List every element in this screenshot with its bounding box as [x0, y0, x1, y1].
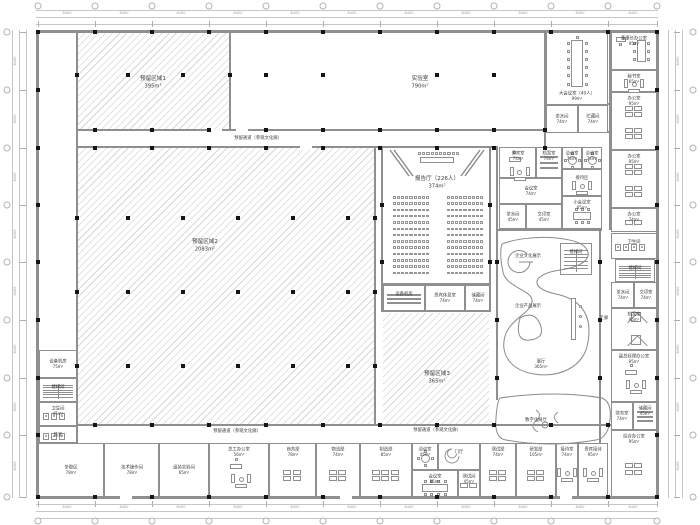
sofa [235, 484, 247, 488]
wc-fixture [633, 246, 635, 248]
stool [579, 315, 582, 318]
chair [587, 221, 590, 224]
desk [498, 476, 506, 481]
room-label: 茶歇区78m² [64, 465, 77, 475]
column [606, 30, 610, 34]
column [346, 290, 350, 294]
desk [391, 470, 399, 475]
chair [567, 74, 570, 77]
room-label: 贵宾接待95m² [584, 447, 601, 457]
column [373, 290, 377, 294]
room-label: 综合办公室95m² [623, 434, 645, 444]
room-label: 洽谈室74m² [565, 151, 578, 161]
desk [634, 134, 642, 139]
column [492, 423, 496, 427]
desk [293, 470, 301, 475]
chair [647, 58, 650, 61]
column [549, 495, 553, 499]
room-label: 办公室95m² [627, 154, 640, 164]
room-label: 前室 [54, 432, 63, 437]
area-label: 预留通道（参观文化廊） [213, 428, 261, 433]
column [207, 30, 211, 34]
wc-fixture [617, 246, 619, 248]
room-label: 接待区 [575, 175, 588, 180]
room-label: 茶水间45m² [506, 211, 519, 221]
chair [567, 50, 570, 53]
column [378, 146, 382, 150]
room-label: 财务室74m² [615, 411, 628, 421]
desk [391, 476, 399, 481]
column [93, 30, 97, 34]
column [150, 423, 154, 427]
chair [633, 50, 636, 53]
column [655, 203, 659, 207]
column [181, 216, 185, 220]
desk [625, 370, 637, 375]
room-label: 贵宾室74m² [511, 151, 524, 161]
column [126, 73, 130, 77]
chair [424, 464, 427, 467]
column [495, 318, 499, 322]
column [207, 423, 211, 427]
column [655, 88, 659, 92]
chair [571, 166, 574, 169]
sofa [599, 468, 603, 477]
chair [567, 83, 570, 86]
sofa [628, 89, 640, 93]
room-label: 董事长办公室95m² [621, 36, 647, 46]
chair [424, 493, 427, 496]
column [435, 146, 439, 150]
coffee-table [591, 471, 596, 476]
room-label: 设备机房 [395, 291, 412, 296]
room-label: 茶水间74m² [616, 290, 629, 300]
desk [634, 164, 642, 169]
desk [527, 476, 535, 481]
column [435, 128, 439, 132]
chair [444, 493, 447, 496]
column [36, 30, 40, 34]
room-label: 秘书室65m² [627, 74, 640, 84]
column [207, 128, 211, 132]
column [492, 30, 496, 34]
chair [585, 50, 588, 53]
column [655, 495, 659, 499]
column [321, 146, 325, 150]
room-label: 商务部78m² [286, 447, 299, 457]
chair [647, 42, 650, 45]
meeting-table [573, 212, 591, 220]
column [435, 495, 439, 499]
column [321, 73, 325, 77]
coffee-table [517, 170, 522, 175]
column [207, 495, 211, 499]
column [492, 73, 496, 77]
zone-label: 实验室790m² [411, 75, 428, 89]
desk [329, 470, 337, 475]
column [495, 376, 499, 380]
room-label: 卫生间45m² [51, 406, 64, 416]
column [378, 30, 382, 34]
desk [634, 112, 642, 117]
room-label: 文印室74m² [639, 290, 652, 300]
column [36, 260, 40, 264]
column [126, 364, 130, 368]
room-label: 研发部105m² [529, 447, 542, 457]
column [655, 260, 659, 264]
column [181, 364, 185, 368]
desk [625, 186, 633, 191]
sofa [576, 191, 588, 195]
column [321, 128, 325, 132]
column [655, 146, 659, 150]
room-label: 小会议室65m² [573, 200, 590, 210]
column [346, 364, 350, 368]
sofa [626, 380, 630, 389]
stage-podium [420, 157, 454, 163]
sofa [587, 478, 599, 482]
room-label: 档案室95m² [627, 312, 640, 322]
column [36, 433, 40, 437]
column [655, 318, 659, 322]
chair [585, 58, 588, 61]
shelf [540, 167, 558, 169]
sofa [561, 478, 573, 482]
column [36, 376, 40, 380]
sofa [588, 181, 592, 190]
desk [293, 476, 301, 481]
desk [634, 106, 642, 111]
column [378, 128, 382, 132]
column [655, 433, 659, 437]
desk [338, 476, 346, 481]
column [291, 216, 295, 220]
room-label: 大会议室（40人）99m² [559, 91, 595, 101]
room-label: 储藏间45m² [638, 406, 651, 416]
chair [431, 457, 434, 460]
room-label: 贮藏间74m² [586, 114, 599, 124]
room-label: 测试部74m² [491, 447, 504, 457]
wc-fixture [45, 435, 47, 437]
room-label: 楼梯间 [569, 249, 582, 254]
desk [625, 170, 633, 175]
column [150, 495, 154, 499]
desk [625, 134, 633, 139]
column [380, 203, 384, 207]
sofa [526, 167, 530, 176]
zone-label: 预留区域22083m² [192, 238, 218, 252]
column [36, 495, 40, 499]
shelf [387, 298, 421, 300]
column [75, 364, 79, 368]
desk [634, 192, 642, 197]
column [321, 423, 325, 427]
column [207, 146, 211, 150]
desk [625, 128, 633, 133]
column [264, 30, 268, 34]
column [236, 290, 240, 294]
room-label: 茶水间74m² [555, 114, 568, 124]
sofa [557, 468, 561, 477]
column [435, 30, 439, 34]
column [75, 73, 79, 77]
column [93, 495, 97, 499]
desk [372, 470, 380, 475]
column [264, 73, 268, 77]
column [264, 146, 268, 150]
column [75, 216, 79, 220]
column [373, 364, 377, 368]
column [93, 423, 97, 427]
desk [634, 463, 642, 468]
desk [372, 476, 380, 481]
column [549, 30, 553, 34]
desk [283, 470, 291, 475]
desk [634, 128, 642, 133]
column [36, 203, 40, 207]
room-label: 副总经理办公室95m² [619, 354, 649, 364]
desk [625, 112, 633, 117]
chair [575, 221, 578, 224]
conference-table [571, 40, 583, 87]
area-label: 走廊 [600, 315, 609, 320]
column [181, 290, 185, 294]
chair [424, 480, 427, 483]
room-label: 卫生间 [627, 239, 640, 244]
column [236, 364, 240, 368]
column [150, 128, 154, 132]
desk [338, 470, 346, 475]
desk [536, 470, 544, 475]
floor-plan-canvas: 大会议室（40人）99m²茶水间74m²贮藏间74m²董事长办公室95m²秘书室… [0, 0, 700, 525]
column [93, 146, 97, 150]
area-label: 企业文化展示 [515, 253, 541, 258]
column [378, 495, 382, 499]
column [373, 216, 377, 220]
sofa [640, 79, 644, 88]
desk [625, 470, 633, 475]
chair [576, 36, 579, 39]
room-label: 会议室74m² [524, 186, 537, 196]
chair [235, 458, 238, 461]
desk [381, 476, 389, 481]
sofa [573, 468, 577, 477]
column [36, 318, 40, 322]
desk [634, 186, 642, 191]
column [543, 128, 547, 132]
room-label: 洽谈室45m² [418, 447, 431, 457]
column [36, 88, 40, 92]
room-label: 贵宾休息室74m² [434, 293, 456, 303]
shaft-box [631, 335, 641, 345]
room-label: 门厅 [455, 449, 464, 454]
column [264, 495, 268, 499]
shelf [540, 162, 558, 164]
wc-fixture [625, 246, 627, 248]
column [36, 146, 40, 150]
desk [498, 470, 506, 475]
room-label: 洽谈室74m² [585, 151, 598, 161]
desk [230, 464, 242, 469]
room-label: 设备机房75m² [49, 359, 66, 369]
column [75, 290, 79, 294]
column [150, 30, 154, 34]
sofa [231, 474, 235, 483]
room-label: 办公室74m² [627, 212, 640, 222]
chair [417, 457, 420, 460]
shelf [637, 420, 653, 422]
zone-label: 报告厅（226人）374m² [415, 175, 459, 189]
room-label: 测试间45m² [462, 474, 475, 484]
stool [579, 305, 582, 308]
room-label: 总工办公室56m² [228, 447, 250, 457]
chair [444, 480, 447, 483]
column [488, 203, 492, 207]
room-label: 接待室74m² [560, 447, 573, 457]
room-label: 楼梯间 [51, 384, 64, 389]
sofa [510, 167, 514, 176]
column [321, 30, 325, 34]
desk [625, 192, 633, 197]
area-label: 展厅365m² [534, 359, 547, 369]
column [321, 495, 325, 499]
coffee-table [239, 477, 244, 482]
desk [634, 170, 642, 175]
wc-fixture [45, 415, 47, 417]
desk [625, 106, 633, 111]
sofa [514, 177, 526, 181]
column [655, 376, 659, 380]
column [236, 216, 240, 220]
sofa [572, 181, 576, 190]
chair [630, 364, 633, 367]
column [606, 495, 610, 499]
column [291, 290, 295, 294]
room-label: 组装实验间65m² [173, 465, 195, 475]
meeting-table [422, 484, 448, 492]
room-label: 储藏间74m² [471, 293, 484, 303]
column [150, 146, 154, 150]
chair [591, 166, 594, 169]
room-label: 办公室95m² [627, 96, 640, 106]
chair [585, 42, 588, 45]
column [598, 260, 602, 264]
desk [625, 164, 633, 169]
column [492, 495, 496, 499]
room-label: 物流部74m² [331, 447, 344, 457]
sofa [247, 474, 251, 483]
column [380, 260, 384, 264]
room-label: 技术操作间78m² [121, 465, 143, 475]
zone-label: 预留区域1395m² [140, 75, 166, 89]
area-label: 预留通道（参观文化廊） [234, 135, 282, 140]
area-label: 数字化展厅 [525, 417, 547, 422]
coffee-table [634, 383, 639, 388]
sofa [630, 390, 642, 394]
chair [585, 83, 588, 86]
column [181, 73, 185, 77]
desk [489, 476, 497, 481]
column [291, 364, 295, 368]
wc-fixture [641, 246, 643, 248]
reception-counter [571, 298, 576, 340]
chair [633, 58, 636, 61]
column [435, 73, 439, 77]
desk [625, 463, 633, 468]
chair [567, 58, 570, 61]
desk [489, 470, 497, 475]
column [93, 128, 97, 132]
chair [430, 493, 433, 496]
chair [581, 221, 584, 224]
room-label: 文印室45m² [537, 211, 550, 221]
stool [579, 325, 582, 328]
column [492, 146, 496, 150]
chair [585, 66, 588, 69]
shelf [387, 302, 421, 304]
coffee-table [565, 471, 570, 476]
desk [527, 470, 535, 475]
desk [536, 476, 544, 481]
column [346, 216, 350, 220]
room-label: 会议室85m² [428, 474, 441, 484]
column [126, 216, 130, 220]
column [543, 146, 547, 150]
area-label: 预留通道（参观文化廊） [413, 427, 461, 432]
column [598, 376, 602, 380]
area-label: 企业产品展示 [515, 303, 541, 308]
column [655, 30, 659, 34]
column [378, 423, 382, 427]
column [264, 128, 268, 132]
column [488, 260, 492, 264]
desk [329, 476, 337, 481]
coffee-table [580, 184, 585, 189]
room-label: 楼梯间 [628, 265, 641, 270]
room-label: 档案室74m² [542, 151, 555, 161]
desk [381, 470, 389, 475]
sofa [583, 468, 587, 477]
column [492, 128, 496, 132]
column [549, 423, 553, 427]
column [228, 73, 232, 77]
chair [567, 42, 570, 45]
chair [585, 74, 588, 77]
room-label: 制造部85m² [379, 447, 392, 457]
column [495, 260, 499, 264]
zone-label: 预留区域3365m² [424, 370, 450, 384]
column [606, 423, 610, 427]
sofa [642, 380, 646, 389]
column [264, 423, 268, 427]
desk [634, 470, 642, 475]
column [126, 290, 130, 294]
chair [567, 66, 570, 69]
chair [647, 50, 650, 53]
desk [283, 476, 291, 481]
